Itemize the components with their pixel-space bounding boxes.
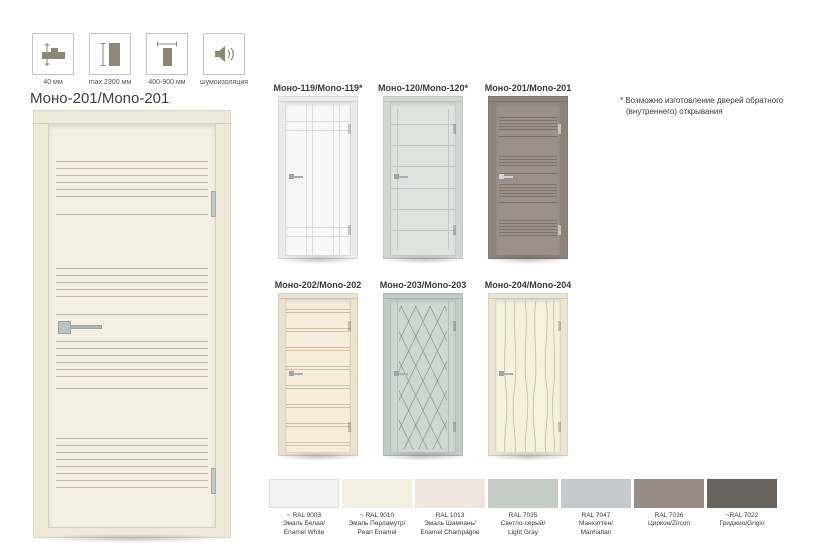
door-thickness-icon bbox=[38, 39, 68, 69]
door-leaf bbox=[48, 123, 216, 528]
color-swatch-ral-1013[interactable]: RAL 1013Эмаль Шампань/Enamel Champagne bbox=[415, 479, 485, 537]
spec-label: шумоизоляция bbox=[200, 79, 248, 86]
door-leaf bbox=[495, 102, 561, 256]
swatch-label: ~ RAL 9010Эмаль Перламутр/Pearl Enamel bbox=[342, 512, 412, 537]
hinge-icon bbox=[558, 124, 561, 134]
door-handle-icon bbox=[58, 321, 104, 334]
note-line: * Возможно изготовление дверей обратного bbox=[620, 96, 812, 107]
swatch-label: ~ RAL 9003Эмаль Белая/Enamel White bbox=[269, 512, 339, 537]
hinge-icon bbox=[348, 124, 351, 134]
handle-lever bbox=[70, 325, 102, 329]
door-handle-icon bbox=[499, 174, 513, 179]
door-leaf bbox=[390, 102, 456, 256]
door-thumbnails-grid: Моно-119/Mono-119* Моно-120/Mono-120* bbox=[268, 83, 578, 456]
swatch-label: RAL 7047Манхэттен/Manhattan bbox=[561, 512, 631, 537]
hinge-icon bbox=[453, 124, 456, 134]
hinge-icon bbox=[211, 468, 216, 494]
color-swatch-ral-7047[interactable]: RAL 7047Манхэттен/Manhattan bbox=[561, 479, 631, 537]
color-swatch-ral-9003[interactable]: ~ RAL 9003Эмаль Белая/Enamel White bbox=[269, 479, 339, 537]
spec-icons-row: 40 мм max 2300 мм bbox=[30, 33, 247, 86]
spec-box bbox=[146, 33, 188, 75]
floor-shadow bbox=[485, 452, 571, 461]
door-pattern bbox=[399, 306, 448, 449]
color-swatch-ral-9010[interactable]: ~ RAL 9010Эмаль Перламутр/Pearl Enamel bbox=[342, 479, 412, 537]
door-thumbnail-mono-201[interactable]: Моно-201/Mono-201 bbox=[478, 83, 578, 259]
door-thumbnail-mono-204[interactable]: Моно-204/Mono-204 bbox=[478, 280, 578, 456]
door-thumbnail-title: Моно-203/Mono-203 bbox=[373, 280, 473, 290]
door-image bbox=[488, 96, 568, 259]
door-image bbox=[488, 293, 568, 456]
note-line: (внутреннего) открывания bbox=[620, 107, 812, 118]
spec-box bbox=[32, 33, 74, 75]
color-swatches-row: ~ RAL 9003Эмаль Белая/Enamel White ~ RAL… bbox=[269, 479, 777, 537]
hinge-icon bbox=[348, 422, 351, 432]
door-handle-icon bbox=[499, 371, 513, 376]
page-title: Моно-201/Mono-201 bbox=[30, 90, 169, 107]
door-height-icon bbox=[95, 39, 125, 69]
door-thumbnail-mono-202[interactable]: Моно-202/Mono-202 bbox=[268, 280, 368, 456]
groove-group bbox=[56, 268, 209, 299]
hinge-icon bbox=[558, 225, 561, 235]
door-thumbnail-title: Моно-202/Mono-202 bbox=[268, 280, 368, 290]
floor-shadow bbox=[275, 255, 361, 264]
spec-thickness: 40 мм bbox=[30, 33, 76, 86]
hinge-icon bbox=[348, 225, 351, 235]
color-swatch-ral-7035[interactable]: RAL 7035Светло-серый/Light Gray bbox=[488, 479, 558, 537]
door-thumbnail-title: Моно-201/Mono-201 bbox=[478, 83, 578, 93]
groove-group bbox=[56, 341, 209, 379]
swatch-label: RAL 7035Светло-серый/Light Gray bbox=[488, 512, 558, 537]
swatch-color[interactable] bbox=[488, 479, 558, 508]
groove-line bbox=[56, 214, 209, 215]
floor-shadow bbox=[30, 534, 234, 543]
spec-sound: шумоизоляция bbox=[201, 33, 247, 86]
spec-box bbox=[89, 33, 131, 75]
hinge-icon bbox=[558, 321, 561, 331]
sound-insulation-icon bbox=[209, 39, 239, 69]
swatch-label: ~RAL 7022Гриджио/Grigio bbox=[707, 512, 777, 529]
floor-shadow bbox=[380, 452, 466, 461]
door-width-icon bbox=[152, 39, 182, 69]
spec-label: 400-900 мм bbox=[148, 79, 185, 86]
color-swatch-ral-7036[interactable]: RAL 7036Циркон/Zircon bbox=[634, 479, 704, 537]
swatch-label: RAL 7036Циркон/Zircon bbox=[634, 512, 704, 529]
door-thumbnail-title: Моно-119/Mono-119* bbox=[268, 83, 368, 93]
swatch-color[interactable] bbox=[415, 479, 485, 508]
door-thumbnail-mono-120[interactable]: Моно-120/Mono-120* bbox=[373, 83, 473, 259]
groove-line bbox=[56, 388, 209, 389]
groove-group bbox=[56, 438, 209, 490]
reversible-door-note: * Возможно изготовление дверей обратного… bbox=[620, 96, 812, 118]
spec-height: max 2300 мм bbox=[87, 33, 133, 86]
door-handle-icon bbox=[394, 174, 408, 179]
door-image bbox=[278, 293, 358, 456]
door-handle-icon bbox=[289, 371, 303, 376]
door-image bbox=[383, 293, 463, 456]
door-leaf bbox=[390, 299, 456, 453]
door-leaf bbox=[285, 102, 351, 256]
swatch-color[interactable] bbox=[707, 479, 777, 508]
door-thumbnail-title: Моно-204/Mono-204 bbox=[478, 280, 578, 290]
hinge-icon bbox=[453, 321, 456, 331]
swatch-color[interactable] bbox=[269, 479, 339, 508]
door-thumbnail-mono-119[interactable]: Моно-119/Mono-119* bbox=[268, 83, 368, 259]
door-image bbox=[383, 96, 463, 259]
spec-label: 40 мм bbox=[43, 79, 62, 86]
door-leaf bbox=[285, 299, 351, 453]
door-handle-icon bbox=[394, 371, 408, 376]
hinge-icon bbox=[211, 191, 216, 217]
swatch-color[interactable] bbox=[634, 479, 704, 508]
floor-shadow bbox=[380, 255, 466, 264]
hinge-icon bbox=[558, 422, 561, 432]
floor-shadow bbox=[485, 255, 571, 264]
spec-width: 400-900 мм bbox=[144, 33, 190, 86]
door-leaf bbox=[495, 299, 561, 453]
door-thumbnail-mono-203[interactable]: Моно-203/Mono-203 bbox=[373, 280, 473, 456]
groove-line bbox=[56, 314, 209, 315]
main-door-image bbox=[33, 110, 231, 538]
color-swatch-ral-7022[interactable]: ~RAL 7022Гриджио/Grigio bbox=[707, 479, 777, 537]
door-thumbnail-title: Моно-120/Mono-120* bbox=[373, 83, 473, 93]
swatch-color[interactable] bbox=[342, 479, 412, 508]
catalog-page: 40 мм max 2300 мм bbox=[0, 0, 815, 550]
swatch-color[interactable] bbox=[561, 479, 631, 508]
groove-group bbox=[56, 161, 209, 199]
door-pattern bbox=[286, 309, 350, 446]
door-image bbox=[278, 96, 358, 259]
hinge-icon bbox=[348, 321, 351, 331]
swatch-label: RAL 1013Эмаль Шампань/Enamel Champagne bbox=[415, 512, 485, 537]
floor-shadow bbox=[275, 452, 361, 461]
door-handle-icon bbox=[289, 174, 303, 179]
spec-label: max 2300 мм bbox=[89, 79, 131, 86]
spec-box bbox=[203, 33, 245, 75]
hinge-icon bbox=[453, 225, 456, 235]
hinge-icon bbox=[453, 422, 456, 432]
